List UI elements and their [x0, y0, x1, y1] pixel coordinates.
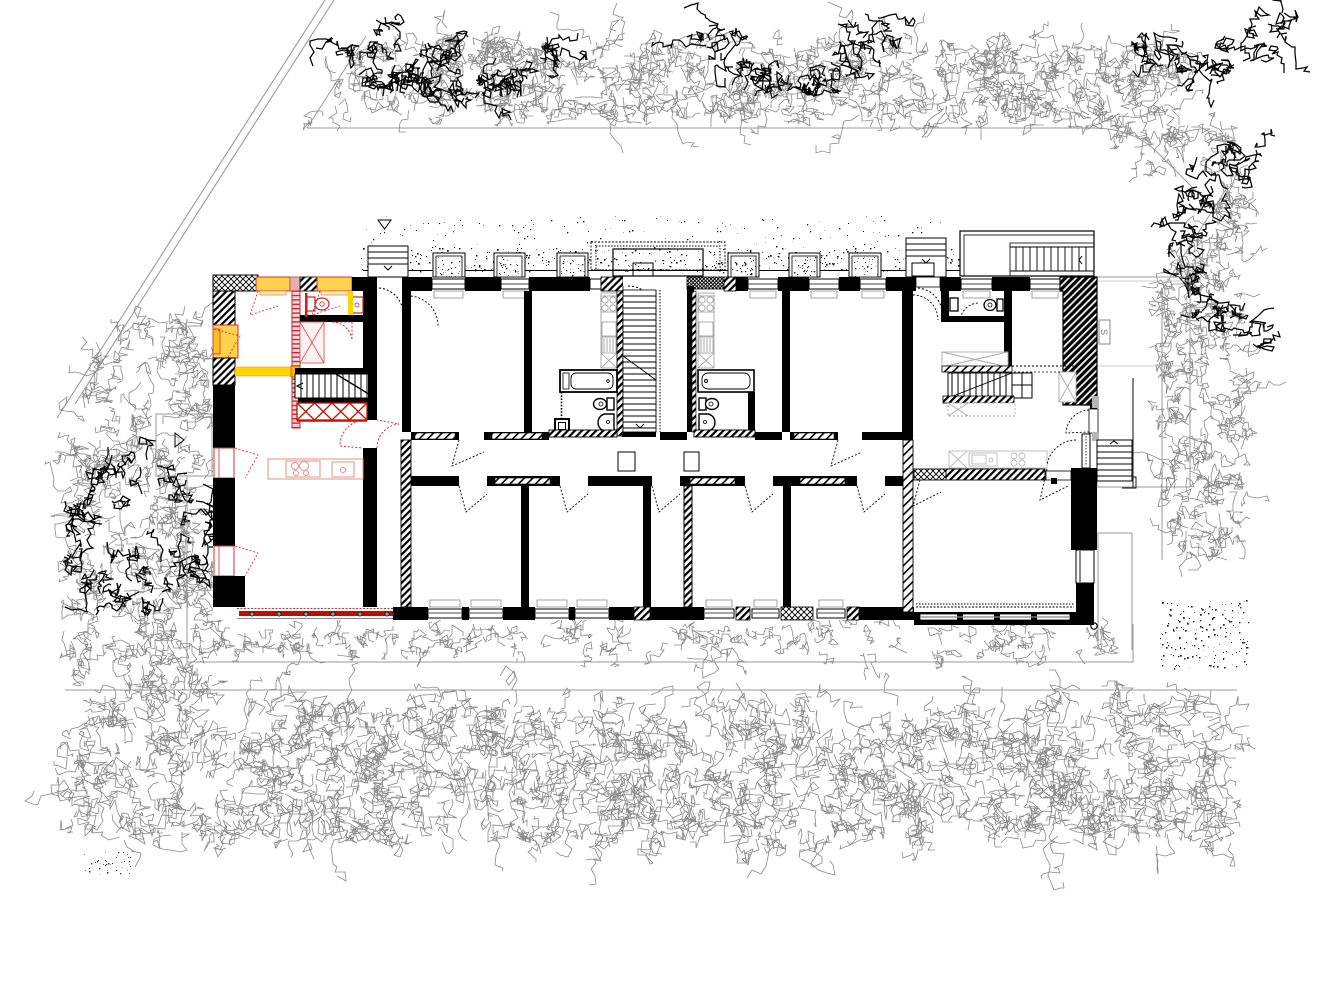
- svg-text:S: S: [1099, 329, 1109, 335]
